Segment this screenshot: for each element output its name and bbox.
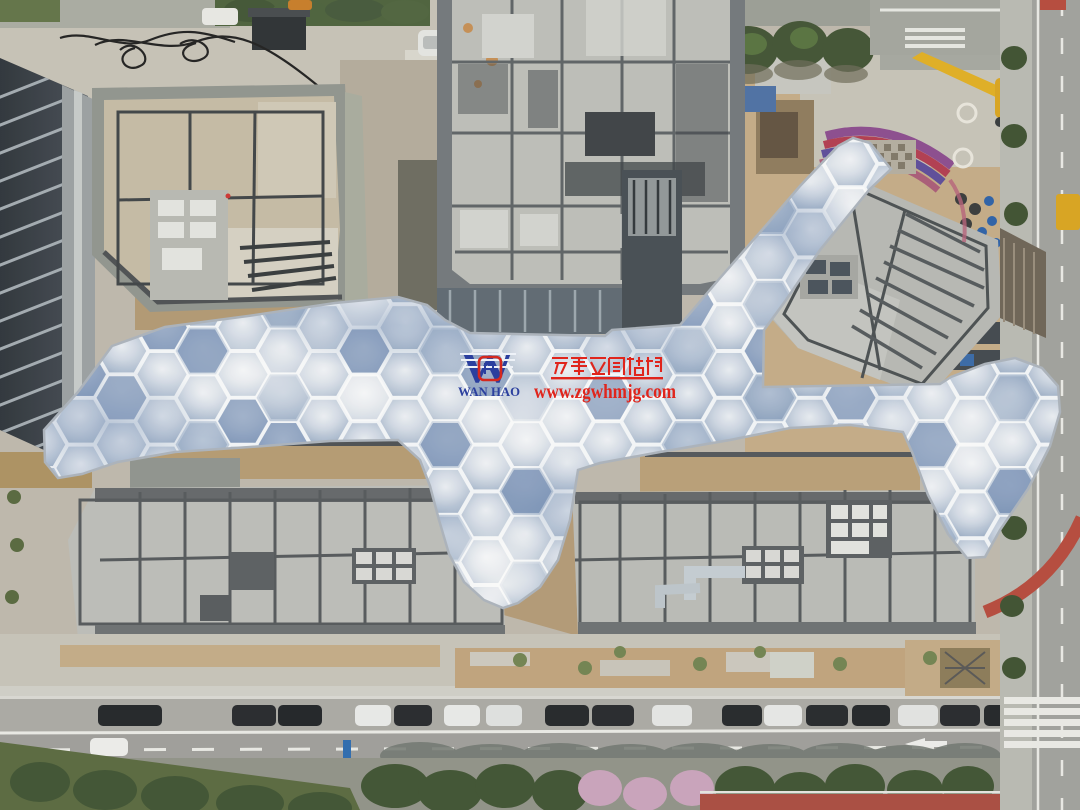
svg-text:WAN HAO: WAN HAO bbox=[458, 384, 520, 399]
svg-text:www.zgwhmjg.com: www.zgwhmjg.com bbox=[534, 381, 676, 403]
